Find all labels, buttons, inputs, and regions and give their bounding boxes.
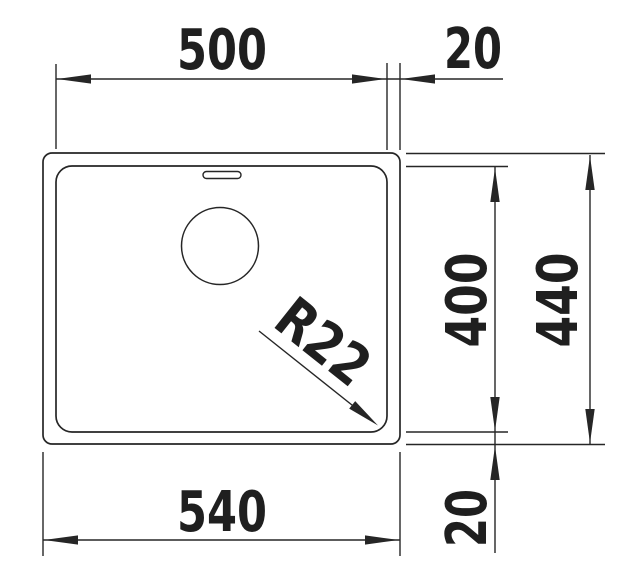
arrowhead-left (44, 535, 78, 544)
corner-radius-leader: R22 (259, 285, 383, 425)
arrowhead-up (585, 156, 594, 190)
dim-label-inner-depth: 400 (435, 253, 500, 348)
arrowhead-left (57, 74, 91, 83)
arrowhead-right (352, 74, 386, 83)
arrowhead-right (365, 535, 399, 544)
dim-label-outer-width: 540 (177, 480, 267, 545)
drawing-canvas: R22 500 20 400 440 20 540 (0, 0, 633, 577)
dim-label-inner-width: 500 (177, 18, 267, 83)
arrowhead-down (585, 409, 594, 443)
dim-label-flange-bottom: 20 (435, 489, 500, 547)
arrowhead-down (490, 397, 499, 431)
dimension-bottom: 540 (43, 452, 400, 556)
drain-hole (182, 208, 259, 285)
leader-arrowhead (349, 401, 378, 425)
dimension-right: 400 440 20 (406, 154, 605, 554)
arrowhead-up (490, 168, 499, 202)
dim-label-outer-depth: 440 (526, 253, 591, 348)
radius-label: R22 (262, 285, 382, 399)
overflow-slot (203, 172, 241, 179)
arrowhead-flange (401, 74, 435, 83)
dimension-top: 500 20 (56, 17, 503, 150)
arrowhead-flange-up (490, 446, 499, 480)
sink-dimension-drawing: R22 500 20 400 440 20 540 (0, 0, 633, 577)
dim-label-flange-right: 20 (444, 17, 502, 82)
